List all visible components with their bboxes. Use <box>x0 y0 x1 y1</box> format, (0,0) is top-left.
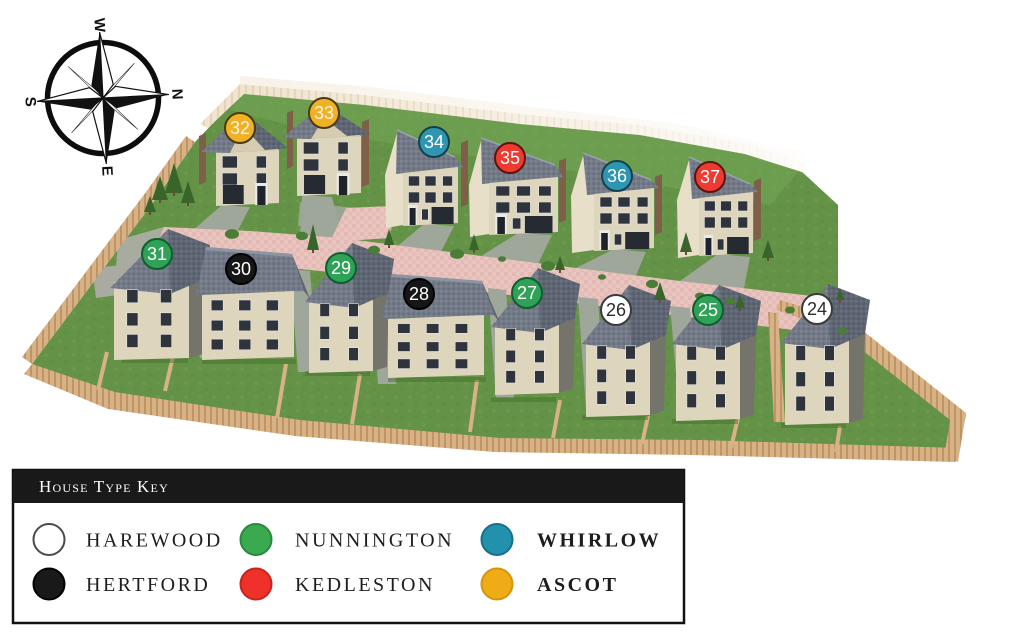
svg-text:36: 36 <box>607 166 627 186</box>
svg-text:House Type Key: House Type Key <box>39 477 169 496</box>
svg-text:27: 27 <box>517 283 537 303</box>
svg-text:WHIRLOW: WHIRLOW <box>537 530 661 552</box>
svg-text:32: 32 <box>230 118 250 138</box>
svg-text:E: E <box>98 165 116 176</box>
svg-text:25: 25 <box>698 300 718 320</box>
svg-text:NUNNINGTON: NUNNINGTON <box>295 530 454 552</box>
svg-text:26: 26 <box>606 300 626 320</box>
svg-text:37: 37 <box>700 167 720 187</box>
svg-text:28: 28 <box>409 284 429 304</box>
svg-text:HERTFORD: HERTFORD <box>86 574 210 596</box>
svg-text:29: 29 <box>331 258 351 278</box>
svg-text:35: 35 <box>500 148 520 168</box>
svg-text:33: 33 <box>314 103 334 123</box>
svg-text:HAREWOOD: HAREWOOD <box>86 530 223 552</box>
svg-text:34: 34 <box>424 132 444 152</box>
svg-text:24: 24 <box>807 299 827 319</box>
svg-text:ASCOT: ASCOT <box>537 574 618 596</box>
svg-text:KEDLESTON: KEDLESTON <box>295 574 435 596</box>
svg-text:31: 31 <box>147 244 167 264</box>
svg-text:W: W <box>90 18 108 34</box>
svg-text:S: S <box>21 96 39 107</box>
svg-text:30: 30 <box>231 259 251 279</box>
svg-text:N: N <box>168 88 186 100</box>
